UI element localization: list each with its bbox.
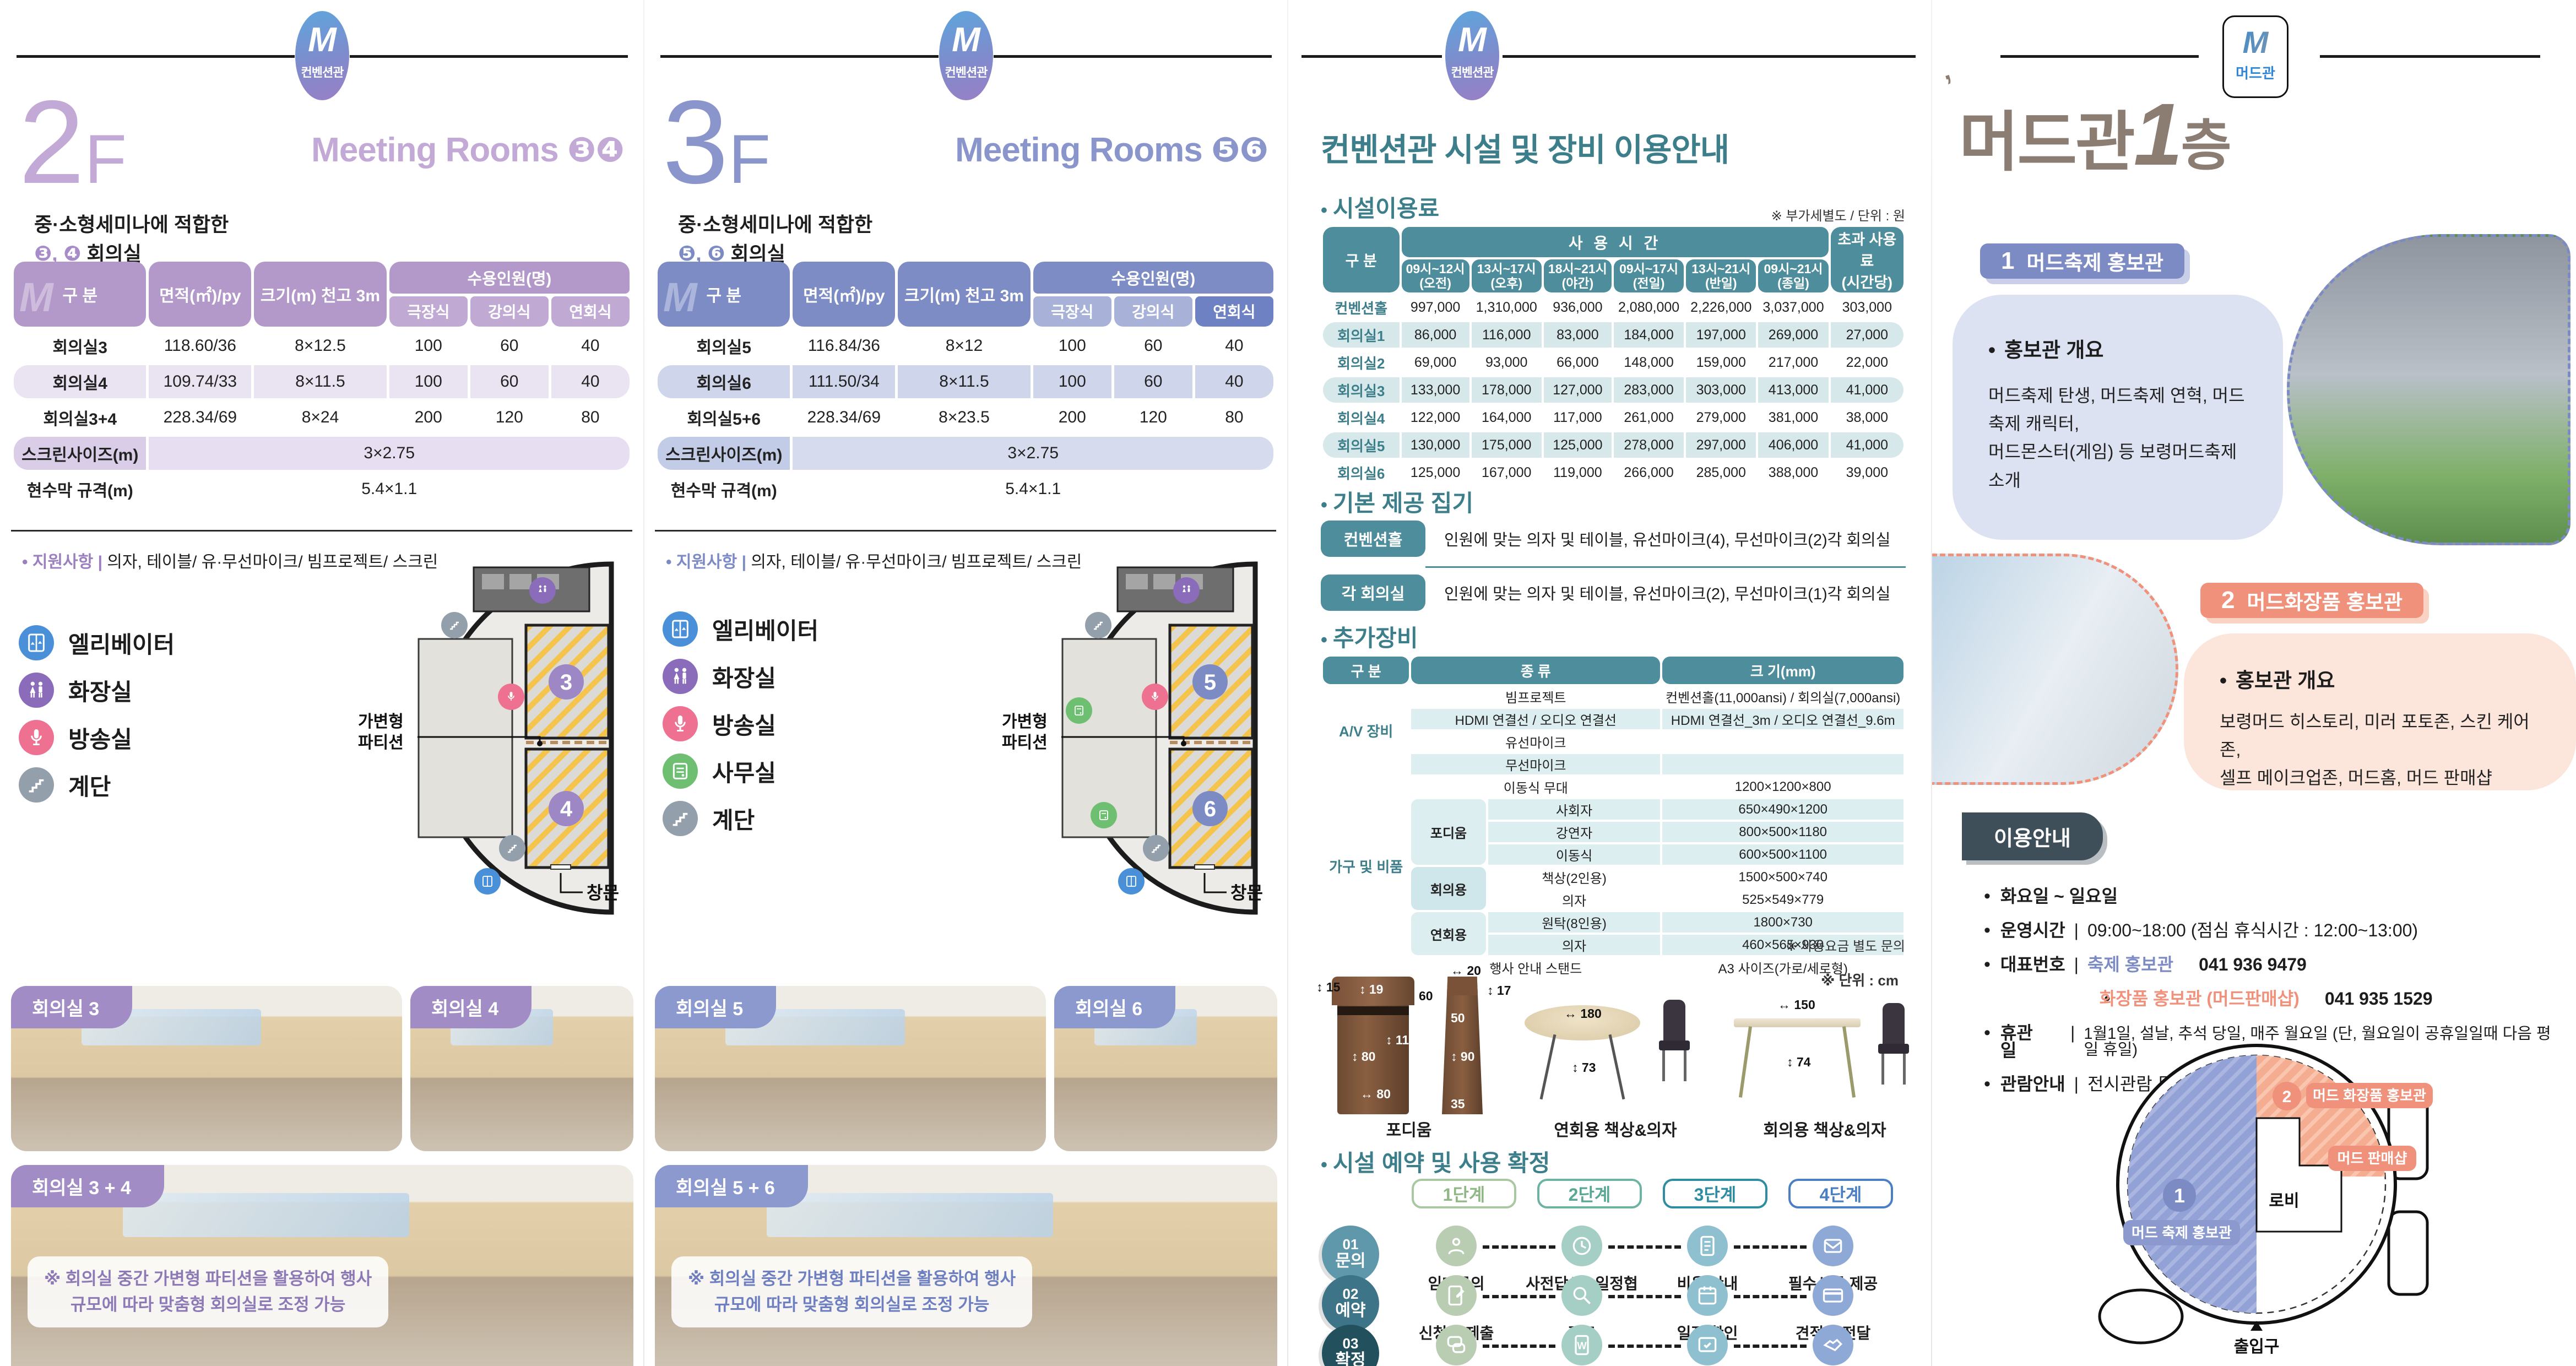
table-row: 회의실3+4228.34/698×2420012080 bbox=[14, 401, 630, 434]
svg-text:가변형: 가변형 bbox=[1002, 713, 1048, 731]
col-header-overtime: 초과 사용료(시간당) bbox=[1831, 227, 1903, 292]
fee-row: 회의실186,000116,00083,000184,000197,000269… bbox=[1323, 322, 1903, 348]
col-header: 크기(m) 천고 3m bbox=[898, 262, 1030, 327]
photo-meeting-room-4: 회의실 4 bbox=[410, 986, 633, 1151]
value-cell: 3×2.75 bbox=[793, 437, 1273, 470]
fee-cell: 119,000 bbox=[1544, 460, 1612, 485]
section-equipment-heading: •추가장비 bbox=[1321, 620, 1418, 653]
legend-item-broadcast: 방송실 bbox=[19, 720, 175, 755]
phase-number: 03 bbox=[1322, 1336, 1379, 1351]
fee-cell: 266,000 bbox=[1614, 460, 1684, 485]
equip-row: 연회용원탁(8인용)1800×730 bbox=[1323, 912, 1903, 933]
equip-size-cell: 525×549×779 bbox=[1662, 890, 1903, 910]
legend-label: 화장실 bbox=[68, 674, 132, 707]
fee-cell: 66,000 bbox=[1544, 350, 1612, 375]
equip-item-cell: 의자 bbox=[1488, 890, 1661, 910]
section2-card: 홍보관 개요 보령머드 히스토리, 미러 포토존, 스킨 케어존, 셀프 메이크… bbox=[2184, 633, 2576, 790]
restroom-icon bbox=[663, 659, 698, 694]
legend-label: 계단 bbox=[68, 768, 111, 802]
equip-row: 의자525×549×779 bbox=[1323, 890, 1903, 910]
legend-label: 계단 bbox=[712, 802, 755, 836]
form-icon bbox=[1436, 1275, 1477, 1316]
value-cell: 120 bbox=[1114, 401, 1192, 434]
photo-label: 회의실 6 bbox=[1054, 986, 1175, 1028]
section2-badge: 2머드화장품 홍보관 bbox=[2200, 583, 2423, 618]
fee-cell: 175,000 bbox=[1472, 432, 1542, 458]
chair-image bbox=[1876, 1003, 1911, 1086]
dim-label: ↕ 90 bbox=[1451, 1049, 1474, 1064]
fee-cell: 381,000 bbox=[1758, 405, 1828, 430]
process-phase-badge: 03확정 bbox=[1322, 1325, 1379, 1366]
equip-group-cell: 가구 및 비품 bbox=[1323, 777, 1409, 955]
fee-cell: 2,080,000 bbox=[1614, 295, 1684, 320]
fee-cell: 41,000 bbox=[1831, 432, 1903, 458]
diagram-caption: 연회용 책상&의자 bbox=[1525, 1116, 1706, 1141]
equip-subgroup-cell: 포디움 bbox=[1411, 799, 1485, 865]
dim-label: 50 bbox=[1451, 1011, 1465, 1026]
desk-image bbox=[1734, 1018, 1861, 1027]
photo-label: 회의실 5 + 6 bbox=[655, 1165, 808, 1207]
header-rule-left bbox=[1301, 55, 1442, 58]
fee-row: 회의실5130,000175,000125,000278,000297,0004… bbox=[1323, 432, 1903, 458]
fee-cell: 122,000 bbox=[1402, 405, 1469, 430]
diagram-caption: 포디움 bbox=[1326, 1116, 1492, 1141]
equip-size-cell: HDMI 연결선_3m / 오디오 연결선_9.6m bbox=[1662, 709, 1903, 729]
room-name-cell: 회의실2 bbox=[1323, 350, 1400, 375]
dim-label: ↔ 150 bbox=[1778, 998, 1815, 1012]
svg-text:파티션: 파티션 bbox=[358, 734, 404, 752]
dim-label: ↕ 19 bbox=[1359, 982, 1383, 997]
dim-label: ↕ 17 bbox=[1487, 983, 1511, 998]
value-cell: 8×11.5 bbox=[898, 365, 1030, 398]
equip-size-cell bbox=[1662, 731, 1903, 752]
room-name-cell: 회의실3 bbox=[1323, 377, 1400, 403]
equip-size-cell: 1500×500×740 bbox=[1662, 867, 1903, 887]
equip-subgroup-cell: 연회용 bbox=[1411, 912, 1485, 955]
col-subheader: 극장식 bbox=[1033, 296, 1111, 327]
equip-size-cell: 650×490×1200 bbox=[1662, 799, 1903, 820]
support-label: • 지원사항 | bbox=[666, 553, 746, 571]
room-name-cell: 회의실5+6 bbox=[658, 401, 790, 434]
fee-cell: 148,000 bbox=[1614, 350, 1684, 375]
fee-cell: 303,000 bbox=[1686, 377, 1756, 403]
restroom-icon bbox=[19, 673, 54, 708]
label-cell: 스크린사이즈(m) bbox=[658, 437, 790, 470]
value-cell: 109.74/33 bbox=[149, 365, 251, 398]
legend-label: 엘리베이터 bbox=[68, 626, 175, 660]
svg-text:머드 판매샵: 머드 판매샵 bbox=[2338, 1150, 2407, 1167]
svg-text:로비: 로비 bbox=[2269, 1192, 2299, 1210]
logo-label: 컨벤션관 bbox=[295, 63, 349, 80]
value-cell: 8×12 bbox=[898, 329, 1030, 362]
header-rule-right bbox=[1503, 55, 1916, 58]
legend-item-elevator: 엘리베이터 bbox=[19, 625, 175, 660]
support-label: • 지원사항 | bbox=[22, 553, 102, 571]
value-cell: 60 bbox=[470, 329, 549, 362]
fee-cell: 3,037,000 bbox=[1758, 295, 1828, 320]
fee-cell: 93,000 bbox=[1472, 350, 1542, 375]
step-header-4: 4단계 bbox=[1788, 1179, 1893, 1208]
table-row: 회의실5116.84/368×121006040 bbox=[658, 329, 1273, 362]
fee-row: 회의실269,00093,00066,000148,000159,000217,… bbox=[1323, 350, 1903, 375]
fee-cell: 69,000 bbox=[1402, 350, 1469, 375]
divider bbox=[11, 530, 632, 532]
value-cell: 3×2.75 bbox=[149, 437, 630, 470]
elevator-icon bbox=[663, 611, 698, 647]
fold-line bbox=[643, 0, 644, 1366]
equip-item-cell: 이동식 bbox=[1488, 844, 1661, 865]
process-step-item: W대관계약 bbox=[1519, 1325, 1645, 1366]
process-items: 세부사항 확정W대관계약정산(계약금/잔금 납부)행사 추진 bbox=[1393, 1325, 1896, 1366]
photo-meeting-room-3-4: 회의실 3 + 4 ※ 회의실 중간 가변형 파티션을 활용하여 행사 규모에 … bbox=[11, 1165, 633, 1366]
person-icon bbox=[1436, 1226, 1477, 1266]
page-title: 머드관1층 bbox=[1959, 84, 2230, 185]
process-step-headers: 1단계2단계3단계4단계 bbox=[1412, 1179, 1893, 1208]
label-cell: 현수막 규격(m) bbox=[658, 473, 790, 506]
photo-meeting-room-3: 회의실 3 bbox=[11, 986, 402, 1151]
legend-item-stairs: 계단 bbox=[19, 767, 175, 803]
room-spec-table-3f: M구 분면적(㎡)/py크기(m) 천고 3m수용인원(명)극장식강의식연회식회… bbox=[655, 259, 1276, 508]
value-cell: 40 bbox=[551, 365, 630, 398]
fold-line bbox=[1931, 0, 1932, 1366]
col-header: 종 류 bbox=[1411, 657, 1660, 684]
value-cell: 111.50/34 bbox=[793, 365, 895, 398]
fee-cell: 283,000 bbox=[1614, 377, 1684, 403]
convention-hall-logo: M 컨벤션관 bbox=[295, 11, 349, 100]
svg-text:5: 5 bbox=[1204, 670, 1216, 695]
logo-m-watermark: M bbox=[663, 274, 697, 321]
divider bbox=[655, 530, 1276, 532]
phase-number: 01 bbox=[1322, 1237, 1379, 1251]
room-name-cell: 회의실6 bbox=[1323, 460, 1400, 485]
equip-item-cell: 강연자 bbox=[1488, 822, 1661, 842]
search-icon bbox=[1561, 1275, 1602, 1316]
equip-item-cell: 빔프로젝트 bbox=[1411, 686, 1660, 707]
usage-phone1: 대표번호|축제 홍보관041 936 9479 bbox=[1984, 955, 2562, 974]
included-divider bbox=[1425, 566, 1906, 568]
fee-cell: 936,000 bbox=[1544, 295, 1612, 320]
fee-cell: 1,310,000 bbox=[1472, 295, 1542, 320]
photo-mud-festival-hall bbox=[2287, 234, 2570, 545]
dim-label: 35 bbox=[1451, 1097, 1465, 1112]
meeting-rooms-title: Meeting Rooms ❸❹ bbox=[311, 129, 624, 170]
included-text: 인원에 맞는 의자 및 테이블, 유선마이크(4), 무선마이크(2)각 회의실 bbox=[1444, 527, 1890, 550]
table-row: 회의실6111.50/348×11.51006040 bbox=[658, 365, 1273, 398]
fees-note: ※ 부가세별도 / 단위 : 원 bbox=[1771, 205, 1905, 224]
logo-m-watermark: M bbox=[19, 274, 53, 321]
time-slot-header: 18시~21시(야간) bbox=[1544, 259, 1612, 292]
title-room-numbers: ❸❹ bbox=[567, 131, 624, 169]
equip-item-cell: 무선마이크 bbox=[1411, 754, 1660, 774]
fee-row: 컨벤션홀997,0001,310,000936,0002,080,0002,22… bbox=[1323, 295, 1903, 320]
equip-row: HDMI 연결선 / 오디오 연결선HDMI 연결선_3m / 오디오 연결선_… bbox=[1323, 709, 1903, 729]
logo-m-icon: M bbox=[939, 23, 993, 57]
overview-body: 보령머드 히스토리, 미러 포토존, 스킨 케어존, 셀프 메이크업존, 머드홈… bbox=[2220, 708, 2546, 793]
included-row: 각 회의실인원에 맞는 의자 및 테이블, 유선마이크(2), 무선마이크(1)… bbox=[1321, 574, 1906, 611]
svg-text:창문: 창문 bbox=[1230, 883, 1263, 903]
value-cell: 120 bbox=[470, 401, 549, 434]
value-cell: 40 bbox=[1195, 329, 1273, 362]
room-name-cell: 회의실4 bbox=[14, 365, 146, 398]
overview-heading: 홍보관 개요 bbox=[2220, 664, 2546, 693]
floorplan-3f: 56가변형파티션창문 bbox=[996, 556, 1283, 920]
room-spec-table-2f: M구 분면적(㎡)/py크기(m) 천고 3m수용인원(명)극장식강의식연회식회… bbox=[11, 259, 632, 508]
phase-name: 문의 bbox=[1322, 1251, 1379, 1271]
chat-icon bbox=[1436, 1325, 1477, 1365]
fee-cell: 285,000 bbox=[1686, 460, 1756, 485]
fee-header-row: 구 분사 용 시 간초과 사용료(시간당) bbox=[1323, 227, 1903, 257]
table-row: 회의실3118.60/368×12.51006040 bbox=[14, 329, 630, 362]
panel-mud-hall: M 머드관 ’ 머드관1층 1머드축제 홍보관 홍보관 개요 머드축제 탄생, … bbox=[1932, 0, 2576, 1366]
process-step-item: 세부사항 확정 bbox=[1393, 1325, 1519, 1366]
dim-label: 60 bbox=[1419, 989, 1433, 1004]
svg-text:머드 화장품 홍보관: 머드 화장품 홍보관 bbox=[2313, 1087, 2426, 1104]
dim-label: ↕ 73 bbox=[1572, 1060, 1596, 1075]
svg-text:창문: 창문 bbox=[587, 883, 619, 903]
broadcast-icon bbox=[19, 720, 54, 755]
fee-cell: 133,000 bbox=[1402, 377, 1469, 403]
value-cell: 8×11.5 bbox=[254, 365, 386, 398]
col-header-gubun: 구 분 bbox=[1323, 227, 1400, 292]
fee-cell: 217,000 bbox=[1758, 350, 1828, 375]
time-slot-header: 13시~17시(오후) bbox=[1472, 259, 1542, 292]
equip-subgroup-cell: 회의용 bbox=[1411, 867, 1485, 910]
phase-name: 예약 bbox=[1322, 1301, 1379, 1321]
clock-icon bbox=[1561, 1226, 1602, 1266]
equip-item-cell: 유선마이크 bbox=[1411, 731, 1660, 752]
card-icon bbox=[1813, 1275, 1853, 1316]
value-cell: 8×12.5 bbox=[254, 329, 386, 362]
time-slot-header: 09시~17시(전일) bbox=[1614, 259, 1684, 292]
podium-diagram: ↕ 15 ↕ 19 ↕ 80 ↕ 110 ↔ 80 ↔ 20 60 ↕ 17 5… bbox=[1326, 972, 1492, 1115]
logo-m-icon: M bbox=[2224, 27, 2287, 58]
equip-size-cell bbox=[1662, 754, 1903, 774]
title-text: Meeting Rooms bbox=[955, 131, 1202, 169]
fee-cell: 279,000 bbox=[1686, 405, 1756, 430]
logo-label: 컨벤션관 bbox=[1445, 63, 1499, 80]
fee-row: 회의실3133,000178,000127,000283,000303,0004… bbox=[1323, 377, 1903, 403]
col-header-capacity: 수용인원(명) bbox=[1033, 262, 1273, 294]
process-phase-badge: 01문의 bbox=[1322, 1226, 1379, 1283]
equip-size-cell: 1800×730 bbox=[1662, 912, 1903, 933]
floor-suffix: F bbox=[85, 121, 127, 198]
fee-cell: 413,000 bbox=[1758, 377, 1828, 403]
convention-hall-logo: M 컨벤션관 bbox=[1445, 11, 1499, 100]
fee-cell: 406,000 bbox=[1758, 432, 1828, 458]
convention-hall-logo: M 컨벤션관 bbox=[939, 11, 993, 100]
fee-cell: 164,000 bbox=[1472, 405, 1542, 430]
fold-line bbox=[1287, 0, 1288, 1366]
room-name-cell: 회의실3+4 bbox=[14, 401, 146, 434]
floor-label-3f: 3F bbox=[663, 83, 771, 201]
equip-size-cell: 컨벤션홀(11,000ansi) / 회의실(7,000ansi) bbox=[1662, 686, 1903, 707]
label-cell: 현수막 규격(m) bbox=[14, 473, 146, 506]
photo-meeting-room-6: 회의실 6 bbox=[1054, 986, 1277, 1151]
header-rule-right bbox=[350, 55, 628, 58]
equip-size-cell: 1200×1200×800 bbox=[1662, 777, 1903, 797]
usage-phone2: 화장품 홍보관 (머드판매샵)041 935 1529 bbox=[2104, 989, 2562, 1008]
value-cell: 100 bbox=[1033, 329, 1111, 362]
fee-cell: 278,000 bbox=[1614, 432, 1684, 458]
equip-item-cell: 사회자 bbox=[1488, 799, 1661, 820]
diagram-caption: 회의용 책상&의자 bbox=[1734, 1116, 1916, 1141]
svg-text:1: 1 bbox=[2174, 1184, 2185, 1207]
fee-cell: 388,000 bbox=[1758, 460, 1828, 485]
elevator-icon bbox=[19, 625, 54, 660]
col-subheader: 강의식 bbox=[1114, 296, 1192, 327]
fee-cell: 117,000 bbox=[1544, 405, 1612, 430]
room-name-cell: 컨벤션홀 bbox=[1323, 295, 1400, 320]
photo-meeting-room-5: 회의실 5 bbox=[655, 986, 1046, 1151]
meeting-rooms-title: Meeting Rooms ❺❻ bbox=[955, 129, 1268, 170]
process-row-확정: 03확정세부사항 확정W대관계약정산(계약금/잔금 납부)행사 추진 bbox=[1322, 1325, 1896, 1366]
fee-cell: 303,000 bbox=[1831, 295, 1903, 320]
photo-meeting-room-5-6: 회의실 5 + 6 ※ 회의실 중간 가변형 파티션을 활용하여 행사 규모에 … bbox=[655, 1165, 1277, 1366]
room-name-cell: 회의실4 bbox=[1323, 405, 1400, 430]
equip-item-cell: 원탁(8인용) bbox=[1488, 912, 1661, 933]
dim-label: ↕ 15 bbox=[1316, 980, 1340, 995]
header-rule-right bbox=[994, 55, 1272, 58]
equip-row: 유선마이크 bbox=[1323, 731, 1903, 752]
equip-size-cell: 800×500×1180 bbox=[1662, 822, 1903, 842]
fee-cell: 86,000 bbox=[1402, 322, 1469, 348]
time-slot-header: 09시~21시(종일) bbox=[1758, 259, 1828, 292]
banquet-set-diagram: ↔ 180 ↕ 73 연회용 책상&의자 bbox=[1525, 972, 1706, 1115]
usage-days: 화요일 ~ 일요일 bbox=[1984, 887, 2562, 906]
floor-suffix: F bbox=[729, 121, 771, 198]
equip-row: A/V 장비빔프로젝트컨벤션홀(11,000ansi) / 회의실(7,000a… bbox=[1323, 686, 1903, 707]
usage-hours: 운영시간|09:00~18:00 (점심 휴식시간 : 12:00~13:00) bbox=[1984, 921, 2562, 940]
fee-row: 회의실6125,000167,000119,000266,000285,0003… bbox=[1323, 460, 1903, 485]
fee-cell: 197,000 bbox=[1686, 322, 1756, 348]
value-cell: 80 bbox=[551, 401, 630, 434]
fee-cell: 178,000 bbox=[1472, 377, 1542, 403]
podium-side-image bbox=[1442, 977, 1483, 1114]
legend-item-broadcast: 방송실 bbox=[663, 706, 818, 741]
page-title: 컨벤션관 시설 및 장비 이용안내 bbox=[1321, 124, 1729, 170]
floorplan-2f: 34가변형파티션창문 bbox=[352, 556, 639, 920]
fee-cell: 261,000 bbox=[1614, 405, 1684, 430]
col-subheader: 강의식 bbox=[470, 296, 549, 327]
col-header: 면적(㎡)/py bbox=[149, 262, 251, 327]
value-cell: 200 bbox=[1033, 401, 1111, 434]
broadcast-icon bbox=[663, 706, 698, 741]
usage-title: 이용안내 bbox=[1962, 812, 2103, 860]
equip-row: 이동식600×500×1100 bbox=[1323, 844, 1903, 865]
section1-badge: 1머드축제 홍보관 bbox=[1980, 243, 2184, 279]
equip-size-cell: 600×500×1100 bbox=[1662, 844, 1903, 865]
meeting-set-diagram: ↔ 150 ↕ 74 회의용 책상&의자 bbox=[1734, 972, 1916, 1115]
fee-cell: 41,000 bbox=[1831, 377, 1903, 403]
legend-label: 방송실 bbox=[68, 721, 132, 755]
legend-item-restroom: 화장실 bbox=[19, 673, 175, 708]
logo-m-icon: M bbox=[295, 23, 349, 57]
svg-text:W: W bbox=[1577, 1340, 1587, 1351]
legend-item-restroom: 화장실 bbox=[663, 659, 818, 694]
equip-row: 포디움사회자650×490×1200 bbox=[1323, 799, 1903, 820]
value-cell: 100 bbox=[1033, 365, 1111, 398]
table-row: 회의실4109.74/338×11.51006040 bbox=[14, 365, 630, 398]
stairs-icon bbox=[19, 767, 54, 803]
col-subheader: 극장식 bbox=[389, 296, 468, 327]
col-header-gubun: M구 분 bbox=[658, 262, 790, 327]
included-badge: 컨벤션홀 bbox=[1321, 521, 1425, 557]
fee-cell: 125,000 bbox=[1402, 460, 1469, 485]
equipment-note: ※ 사용요금 별도 문의 bbox=[1786, 935, 1905, 955]
photo-mud-cosmetics-hall bbox=[1932, 554, 2178, 785]
fee-cell: 39,000 bbox=[1831, 460, 1903, 485]
doc-icon bbox=[1687, 1226, 1728, 1266]
included-badge: 각 회의실 bbox=[1321, 574, 1425, 611]
handshake-icon bbox=[1813, 1325, 1853, 1365]
svg-text:2: 2 bbox=[2282, 1088, 2292, 1106]
dim-label: ↕ 110 bbox=[1386, 1033, 1416, 1048]
calendar-icon bbox=[1687, 1275, 1728, 1316]
header-rule-right bbox=[2320, 55, 2540, 58]
value-cell: 5.4×1.1 bbox=[149, 473, 630, 506]
value-cell: 5.4×1.1 bbox=[793, 473, 1273, 506]
header-rule-left bbox=[660, 55, 939, 58]
value-cell: 100 bbox=[389, 365, 468, 398]
fee-cell: 83,000 bbox=[1544, 322, 1612, 348]
value-cell: 40 bbox=[1195, 365, 1273, 398]
fee-cell: 997,000 bbox=[1402, 295, 1469, 320]
photo-label: 회의실 5 bbox=[655, 986, 776, 1028]
step-header-3: 3단계 bbox=[1663, 1179, 1767, 1208]
legend-label: 사무실 bbox=[712, 755, 776, 788]
equip-group-cell: A/V 장비 bbox=[1323, 686, 1409, 774]
fee-table: 구 분사 용 시 간초과 사용료(시간당)09시~12시(오전)13시~17시(… bbox=[1321, 225, 1906, 487]
svg-text:가변형: 가변형 bbox=[358, 713, 404, 731]
table-span-row: 스크린사이즈(m)3×2.75 bbox=[14, 437, 630, 470]
col-subheader: 연회식 bbox=[551, 296, 630, 327]
dim-label: ↕ 80 bbox=[1352, 1049, 1375, 1064]
col-header: 면적(㎡)/py bbox=[793, 262, 895, 327]
equip-row: 가구 및 비품이동식 무대1200×1200×800 bbox=[1323, 777, 1903, 797]
legend-label: 방송실 bbox=[712, 707, 776, 741]
intro-line1: 중·소형세미나에 적합한 bbox=[34, 210, 229, 239]
office-icon bbox=[663, 754, 698, 789]
panel-facility-guide: M 컨벤션관 컨벤션관 시설 및 장비 이용안내 •시설이용료 ※ 부가세별도 … bbox=[1288, 0, 1932, 1366]
overview-heading: 홍보관 개요 bbox=[1988, 333, 2253, 363]
table-span-row: 스크린사이즈(m)3×2.75 bbox=[658, 437, 1273, 470]
table-row: 회의실5+6228.34/698×23.520012080 bbox=[658, 401, 1273, 434]
title-room-numbers: ❺❻ bbox=[1211, 131, 1268, 169]
stairs-icon bbox=[663, 801, 698, 836]
value-cell: 8×24 bbox=[254, 401, 386, 434]
table-header-row: M구 분면적(㎡)/py크기(m) 천고 3m수용인원(명) bbox=[14, 262, 630, 294]
value-cell: 8×23.5 bbox=[898, 401, 1030, 434]
included-row: 컨벤션홀인원에 맞는 의자 및 테이블, 유선마이크(4), 무선마이크(2)각… bbox=[1321, 521, 1906, 557]
svg-text:4: 4 bbox=[560, 797, 573, 821]
value-cell: 60 bbox=[1114, 329, 1192, 362]
fee-cell: 130,000 bbox=[1402, 432, 1469, 458]
brochure-page: M 컨벤션관 2F Meeting Rooms ❸❹ 중·소형세미나에 적합한 … bbox=[0, 0, 2576, 1366]
photo-label: 회의실 3 bbox=[11, 986, 132, 1028]
svg-text:파티션: 파티션 bbox=[1002, 734, 1048, 752]
equip-row: 강연자800×500×1180 bbox=[1323, 822, 1903, 842]
value-cell: 100 bbox=[389, 329, 468, 362]
fee-cell: 27,000 bbox=[1831, 322, 1903, 348]
room-name-cell: 회의실5 bbox=[1323, 432, 1400, 458]
equip-row: 무선마이크 bbox=[1323, 754, 1903, 774]
col-header: 크 기(mm) bbox=[1662, 657, 1903, 684]
time-slot-header: 09시~12시(오전) bbox=[1402, 259, 1469, 292]
table-header-row: M구 분면적(㎡)/py크기(m) 천고 3m수용인원(명) bbox=[658, 262, 1273, 294]
section-process-heading: •시설 예약 및 사용 확정 bbox=[1321, 1145, 1550, 1178]
fee-cell: 116,000 bbox=[1472, 322, 1542, 348]
fee-cell: 167,000 bbox=[1472, 460, 1542, 485]
